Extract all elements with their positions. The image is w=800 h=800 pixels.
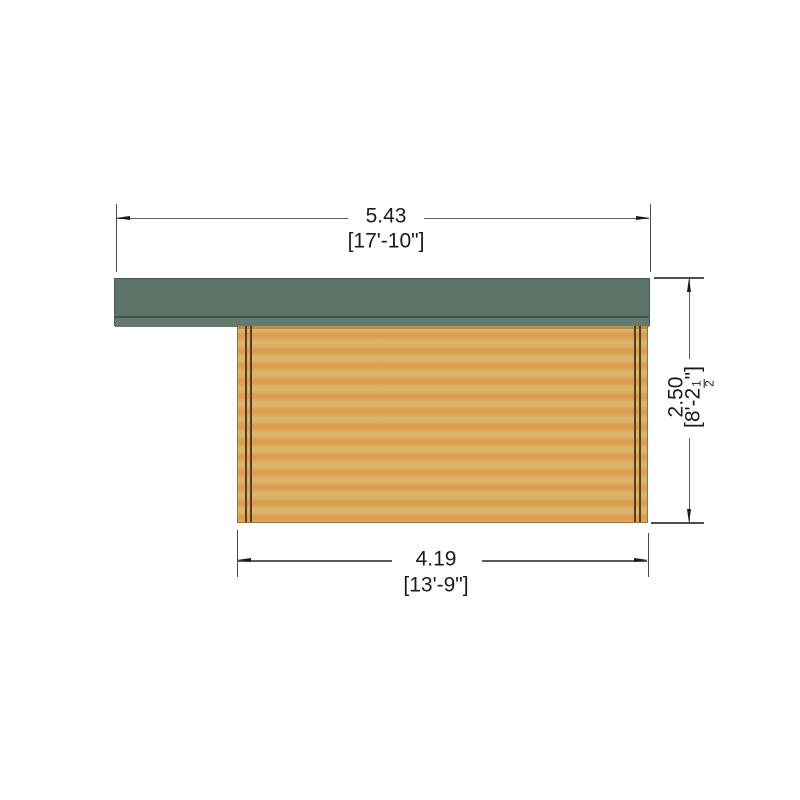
dimension-line <box>482 560 647 562</box>
fraction: 12 <box>692 379 717 387</box>
log-wall <box>237 326 648 523</box>
dimension-line <box>117 218 348 220</box>
dimension-top-imperial: [17'-10"] <box>348 231 425 252</box>
arrowhead-right-icon <box>636 216 650 220</box>
arrowhead-up-icon <box>687 278 691 292</box>
dimension-line <box>238 560 392 562</box>
imperial-prefix: [8'-2 <box>682 388 705 428</box>
extension-line <box>116 204 118 272</box>
extension-line <box>654 277 704 279</box>
extension-line <box>648 533 650 577</box>
arrowhead-right-icon <box>634 558 648 562</box>
dimension-bottom-metric: 4.19 <box>416 549 457 570</box>
fraction-numerator: 1 <box>692 379 705 387</box>
fraction-denominator: 2 <box>705 379 717 387</box>
dimension-top-metric: 5.43 <box>366 206 407 227</box>
arrowhead-left-icon <box>116 216 130 220</box>
imperial-suffix: "] <box>682 366 705 379</box>
corner-trim-left-line <box>245 326 247 522</box>
arrowhead-down-icon <box>687 509 691 523</box>
extension-line <box>237 530 239 577</box>
dimension-line <box>424 218 649 220</box>
elevation-drawing: 5.43 [17'-10"] 2.50 [8'-212"] 4.19 [13'-… <box>0 0 800 800</box>
wall-top-shadow <box>238 326 647 329</box>
corner-trim-right-line <box>634 326 636 522</box>
roof <box>114 278 650 326</box>
extension-line <box>651 522 704 524</box>
dimension-right-imperial: [8'-212"] <box>683 366 718 428</box>
arrowhead-left-icon <box>237 558 251 562</box>
dimension-bottom-imperial: [13'-9"] <box>403 575 468 596</box>
corner-trim-right-line <box>639 326 641 522</box>
extension-line <box>650 204 652 272</box>
corner-trim-left-line <box>250 326 252 522</box>
